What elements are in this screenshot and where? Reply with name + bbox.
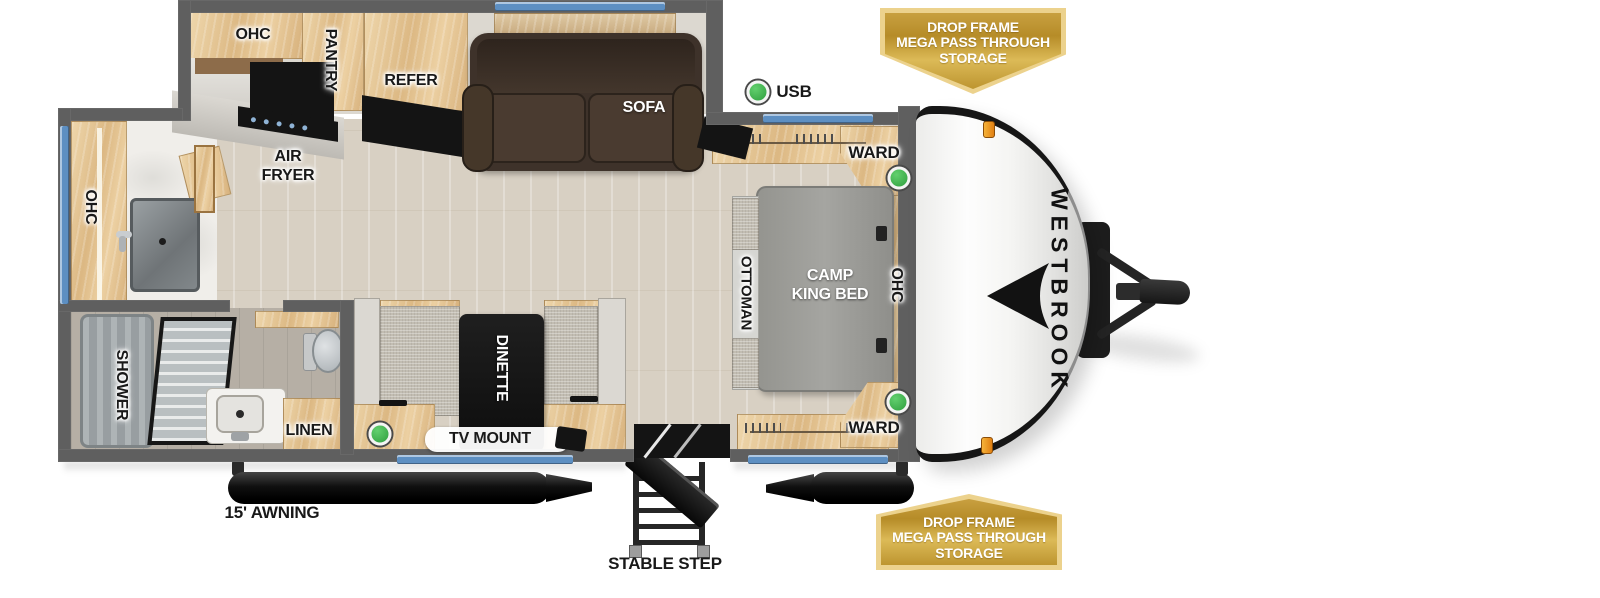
window-bottom-bedroom: [748, 455, 888, 464]
badge-line-1: DROP FRAME: [892, 515, 1046, 531]
label-ward-bottom: WARD: [848, 418, 899, 438]
bath-pocket-door: [194, 145, 215, 213]
refrigerator-cabinet: [364, 12, 468, 111]
badge-line-3: STORAGE: [896, 51, 1050, 67]
label-refer: REFER: [384, 72, 437, 90]
ottoman-cushion-top: [732, 198, 759, 250]
badge-line-3: STORAGE: [892, 546, 1046, 562]
dinette-back-right: [598, 298, 626, 416]
wall-slide-left: [178, 0, 191, 121]
ward-top-indicator-dot: [888, 167, 911, 190]
marker-light-top: [983, 121, 995, 138]
badge-line-1: DROP FRAME: [896, 20, 1050, 36]
range-knob: [289, 123, 295, 129]
bath-upper-shelf: [255, 311, 339, 328]
label-bedroom-ohc: OHC: [887, 268, 905, 303]
label-sofa: SOFA: [623, 99, 666, 117]
label-ottoman: OTTOMAN: [738, 256, 755, 330]
awning-bracket-right: [896, 460, 908, 476]
label-pantry: PANTRY: [321, 29, 339, 92]
tv-unit: [555, 426, 588, 452]
awning-tube-right: [810, 472, 914, 504]
window-rear: [60, 126, 69, 304]
dinette-back-left: [354, 298, 380, 416]
sofa-armrest-left: [462, 84, 494, 172]
wall-slide-right: [706, 0, 723, 124]
label-air-fryer-line2: FRYER: [262, 167, 315, 185]
awning-tube-right-taper: [766, 474, 814, 502]
label-shower: SHOWER: [112, 350, 130, 421]
sink-faucet-base: [119, 236, 126, 252]
label-bed-line2: KING BED: [792, 286, 869, 304]
label-bed-line1: CAMP: [807, 267, 853, 285]
label-tv-mount: TV MOUNT: [449, 430, 531, 448]
step-edge-line: [673, 424, 701, 459]
label-dinette: DINETTE: [492, 334, 510, 401]
hanger-ticks-bottom-left: [745, 423, 781, 433]
step-rung: [639, 540, 699, 545]
ottoman-cushion-bottom: [732, 338, 759, 388]
storage-badge-bottom: DROP FRAME MEGA PASS THROUGH STORAGE: [876, 494, 1062, 570]
wall-bath-right: [340, 300, 354, 455]
ward-bottom-indicator-dot: [887, 391, 910, 414]
label-stable-step: STABLE STEP: [608, 554, 722, 574]
speaker-bar-left: [379, 400, 407, 406]
window-bottom-dinette: [397, 455, 573, 464]
floorplan-canvas: WESTBROOK DROP FRAME MEGA PASS THROUGH S…: [0, 0, 1600, 598]
label-kitchen-ohc: OHC: [236, 26, 271, 44]
bed-reading-light-top: [876, 226, 887, 241]
range-knob: [276, 121, 282, 127]
window-bedroom-top: [763, 114, 873, 123]
awning-tube-left: [228, 472, 550, 504]
range-knob: [302, 125, 308, 131]
entry-step-landing: [634, 424, 730, 458]
range-knob: [251, 117, 257, 123]
brand-arrow-icon: [987, 263, 1049, 329]
sofa-backrest: [477, 39, 695, 93]
step-rung: [639, 524, 699, 529]
storage-badge-bottom-panel: DROP FRAME MEGA PASS THROUGH STORAGE: [881, 499, 1057, 565]
step-edge-line: [643, 424, 671, 459]
label-ward-top: WARD: [848, 143, 899, 163]
label-awning: 15' AWNING: [225, 503, 320, 523]
badge-line-2: MEGA PASS THROUGH: [896, 35, 1050, 51]
storage-badge-top-panel: DROP FRAME MEGA PASS THROUGH STORAGE: [885, 13, 1061, 89]
badge-line-2: MEGA PASS THROUGH: [892, 530, 1046, 546]
wall-bath-top: [58, 300, 230, 312]
wall-bath-top-right: [283, 300, 345, 312]
label-air-fryer-line1: AIR: [275, 148, 302, 166]
label-bath-ohc: OHC: [81, 190, 99, 225]
bath-sink-drain: [236, 410, 244, 418]
hanger-ticks-top-right: [796, 134, 838, 144]
sofa-seat-left: [482, 93, 586, 163]
dinette-indicator-dot: [369, 423, 392, 446]
usb-indicator-dot: [747, 81, 770, 104]
marker-light-bottom: [981, 437, 993, 454]
range-knob: [263, 119, 269, 125]
bath-faucet: [231, 432, 249, 441]
window-slide-top: [495, 2, 665, 11]
awning-tube-left-taper: [546, 474, 592, 502]
label-linen: LINEN: [285, 422, 332, 440]
wall-top-left: [58, 108, 183, 121]
dinette-cabinet-left: [349, 404, 435, 451]
sofa-armrest-right: [672, 84, 704, 172]
brand-logo: WESTBROOK: [1046, 188, 1073, 394]
kitchen-sink: [130, 198, 200, 292]
speaker-bar-right: [570, 396, 598, 402]
bed-reading-light-bottom: [876, 338, 887, 353]
sink-drain: [159, 238, 166, 245]
hitch-coupler: [1139, 279, 1190, 306]
storage-badge-top: DROP FRAME MEGA PASS THROUGH STORAGE: [880, 8, 1066, 94]
label-usb: USB: [776, 82, 811, 102]
